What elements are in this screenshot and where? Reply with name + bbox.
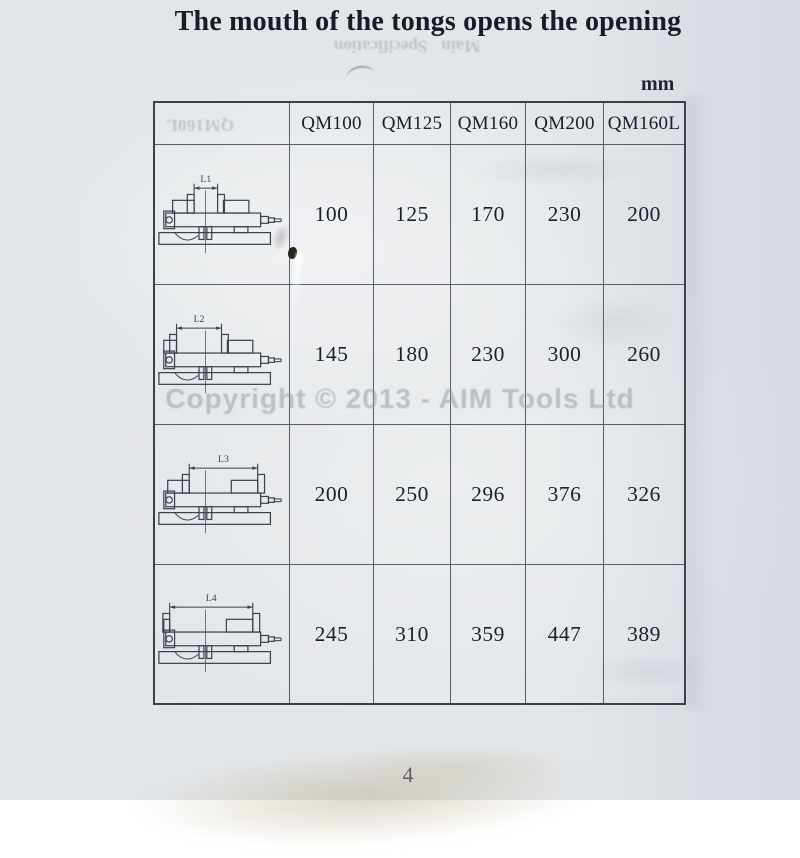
table-value: 359 bbox=[451, 565, 526, 703]
vise-drawing: L2 bbox=[155, 309, 289, 401]
table-value: 100 bbox=[290, 145, 374, 285]
vise-diagram-l1: L1 bbox=[155, 145, 290, 285]
table-value: 230 bbox=[526, 145, 604, 285]
table-value: 170 bbox=[451, 145, 526, 285]
table-value: 230 bbox=[451, 285, 526, 425]
vise-diagram-l3: L3 bbox=[155, 425, 290, 565]
column-header-qm125: QM125 bbox=[374, 103, 451, 145]
table-value: 296 bbox=[451, 425, 526, 565]
table-value: 145 bbox=[290, 285, 374, 425]
table-value: 250 bbox=[374, 425, 451, 565]
column-header-qm200: QM200 bbox=[526, 103, 604, 145]
table-value: 200 bbox=[604, 145, 684, 285]
paper-crease bbox=[345, 64, 375, 81]
table-value: 326 bbox=[604, 425, 684, 565]
table-value: 200 bbox=[290, 425, 374, 565]
table-corner-cell: QM160L bbox=[155, 103, 290, 145]
table-value: 310 bbox=[374, 565, 451, 703]
svg-text:L1: L1 bbox=[200, 174, 211, 185]
spec-table: QM160L QM100 QM125 QM160 QM200 QM160L L1… bbox=[153, 101, 686, 705]
table-value: 260 bbox=[604, 285, 684, 425]
svg-text:L3: L3 bbox=[218, 454, 229, 465]
vise-drawing: L3 bbox=[155, 449, 289, 541]
table-value: 376 bbox=[526, 425, 604, 565]
svg-text:L4: L4 bbox=[206, 593, 217, 604]
column-header-qm100: QM100 bbox=[290, 103, 374, 145]
column-header-qm160l: QM160L bbox=[604, 103, 684, 145]
bleedthrough-text: QM160L bbox=[160, 115, 234, 135]
table-value: 300 bbox=[526, 285, 604, 425]
unit-label: mm bbox=[641, 73, 685, 96]
page-fold-shadow bbox=[686, 95, 716, 710]
table-value: 389 bbox=[604, 565, 684, 703]
paper-shadow bbox=[340, 745, 580, 785]
page-title: The mouth of the tongs opens the opening bbox=[170, 6, 686, 38]
column-header-qm160: QM160 bbox=[451, 103, 526, 145]
vise-drawing: L4 bbox=[155, 588, 289, 680]
svg-text:L2: L2 bbox=[194, 314, 205, 325]
table-value: 447 bbox=[526, 565, 604, 703]
vise-diagram-l4: L4 bbox=[155, 565, 290, 703]
vise-diagram-l2: L2 bbox=[155, 285, 290, 425]
table-value: 245 bbox=[290, 565, 374, 703]
bleedthrough-heading: Main Specification bbox=[306, 36, 508, 56]
table-value: 180 bbox=[374, 285, 451, 425]
scanned-manual-page: The mouth of the tongs opens the opening… bbox=[0, 0, 800, 800]
table-value: 125 bbox=[374, 145, 451, 285]
